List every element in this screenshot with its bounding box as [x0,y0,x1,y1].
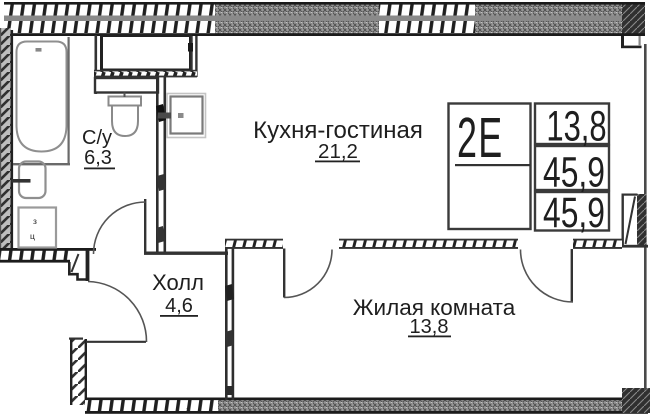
svg-text:13,8: 13,8 [546,101,606,149]
svg-text:13,8: 13,8 [410,316,449,338]
svg-text:4,6: 4,6 [165,295,193,317]
svg-text:6,3: 6,3 [84,147,112,169]
svg-text:2Е: 2Е [457,107,503,170]
svg-text:С/у: С/у [82,127,112,149]
svg-text:45,9: 45,9 [543,189,605,237]
svg-text:Холл: Холл [152,270,204,295]
svg-text:21,2: 21,2 [318,140,358,163]
svg-text:з: з [33,216,37,226]
svg-text:ц: ц [30,231,35,241]
